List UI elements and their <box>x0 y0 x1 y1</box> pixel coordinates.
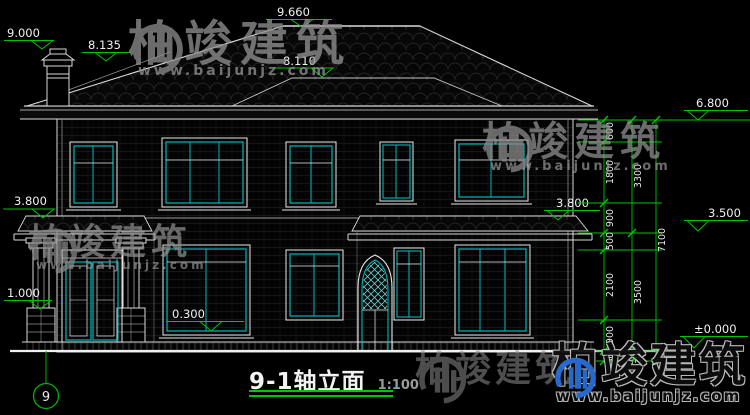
window-2f-1 <box>66 142 121 210</box>
level-marker-chimney: 9.000 <box>4 26 54 49</box>
elevation-drawing: 9 9.660 8.110 9.000 8.135 6.800 3.500 ±0… <box>0 0 750 415</box>
title-underline-1 <box>249 390 393 392</box>
svg-text:300: 300 <box>606 348 615 363</box>
svg-text:600: 600 <box>605 122 616 140</box>
level-marker-left-roof: 8.135 <box>82 38 130 61</box>
svg-text:1.000: 1.000 <box>7 286 40 300</box>
cad-elevation-canvas: 9 9.660 8.110 9.000 8.135 6.800 3.500 ±0… <box>0 0 750 415</box>
level-marker-right: 3.500 <box>684 206 748 231</box>
level-marker-ground: ±0.000 <box>680 322 748 348</box>
svg-text:0.300: 0.300 <box>172 307 205 321</box>
level-marker-porch-roof: 3.800 <box>3 194 55 218</box>
svg-text:9.000: 9.000 <box>7 26 40 40</box>
axis-bubble-9: 9 <box>34 351 59 409</box>
svg-text:9.660: 9.660 <box>277 5 310 19</box>
eave-fascia <box>20 106 598 119</box>
svg-text:3300: 3300 <box>633 164 644 188</box>
svg-text:3.800: 3.800 <box>14 194 47 208</box>
svg-text:7100: 7100 <box>657 228 668 252</box>
dimension-values: 600 1800 900 500 2100 900 300 3300 3500 … <box>605 122 668 364</box>
svg-text:500: 500 <box>605 232 616 250</box>
svg-text:2100: 2100 <box>605 273 616 297</box>
svg-text:1800: 1800 <box>605 160 616 184</box>
svg-text:6.800: 6.800 <box>696 96 729 110</box>
svg-text:8.135: 8.135 <box>88 38 121 52</box>
facade-wall <box>22 119 594 352</box>
svg-text:±0.000: ±0.000 <box>694 322 737 336</box>
svg-text:900: 900 <box>605 326 616 344</box>
svg-text:300: 300 <box>634 348 643 363</box>
svg-text:3.500: 3.500 <box>708 206 741 220</box>
svg-text:8.110: 8.110 <box>283 54 316 68</box>
level-marker-ridge: 9.660 <box>266 5 332 27</box>
chimney <box>42 49 74 106</box>
axis-bubble-label: 9 <box>42 390 50 405</box>
svg-text:900: 900 <box>605 209 616 227</box>
title-underline-2 <box>249 395 393 397</box>
svg-text:3500: 3500 <box>633 280 644 304</box>
level-marker-eave: 6.800 <box>684 96 748 120</box>
